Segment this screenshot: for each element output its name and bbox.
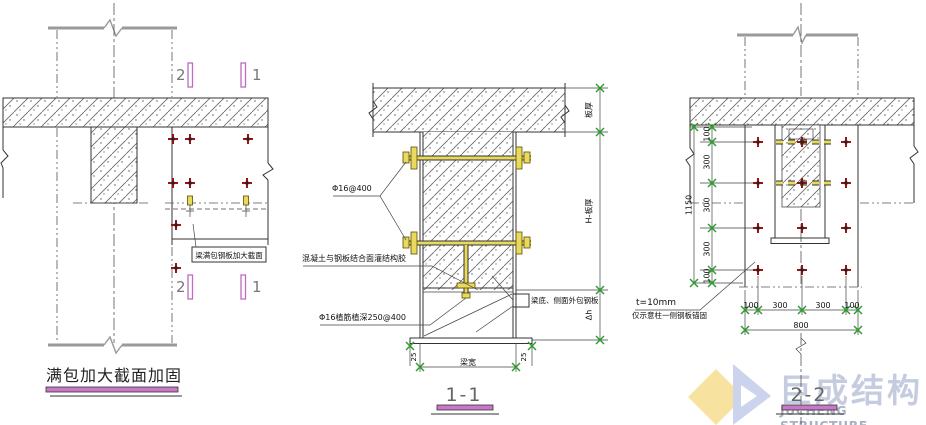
- dim-left-0: 100: [703, 126, 712, 141]
- label-bolts: Φ16@400: [332, 185, 372, 194]
- bottom-steel-plate: [410, 338, 532, 344]
- column-section: [91, 127, 137, 203]
- leader-bolts: [333, 162, 406, 240]
- dim-bottom-2: 300: [810, 301, 836, 310]
- dim-beam-width-label: 梁宽: [453, 357, 483, 368]
- section-marker-1-top: 1: [252, 66, 262, 84]
- label-wrap-plate: 梁底、侧面外包钢板: [531, 297, 599, 305]
- yellow-anchor-pins: [186, 196, 250, 217]
- label-anchorage-note: 仅示意柱一侧钢板锚固: [632, 312, 707, 320]
- dim-left-3: 300: [703, 241, 712, 256]
- section-marker-1-bottom: 1: [252, 278, 262, 296]
- left-view-linework: [1, 3, 273, 353]
- section-cut-bar-1-top: [241, 63, 246, 87]
- slab-section-1-1: [373, 88, 565, 132]
- dim-slab-thickness: 板厚: [584, 102, 595, 118]
- dim-bottom-0: 100: [738, 301, 764, 310]
- dim-beam-height: H-板厚: [584, 199, 595, 224]
- section-cut-bar-2-top: [188, 63, 193, 87]
- main-title: 满包加大截面加固: [46, 362, 182, 386]
- dim-left-total: 1150: [685, 195, 694, 215]
- wrap-note-label: 梁满包钢板加大截面: [194, 250, 264, 261]
- label-plate-thickness: t=10mm: [636, 299, 676, 309]
- dim-bottom-total: 800: [788, 321, 814, 330]
- section-cut-bar-1-bottom: [241, 275, 246, 299]
- dim-25-left: 25: [410, 353, 418, 362]
- main-title-underline: [46, 387, 182, 396]
- dim-25-right: 25: [520, 353, 528, 362]
- title-1-1: 1-1: [434, 384, 494, 406]
- section-marker-2-top: 2: [176, 66, 186, 84]
- section-marker-2-bottom: 2: [176, 278, 186, 296]
- dim-bottom-1: 300: [767, 301, 793, 310]
- slab-section: [3, 98, 268, 127]
- title-2-2: 2-2: [779, 384, 839, 406]
- dim-left-1: 300: [703, 154, 712, 169]
- dim-left-2: 300: [703, 197, 712, 212]
- slab-section-2-2: [690, 98, 914, 125]
- label-adhesive: 混凝土与钢板结合面灌结构胶: [302, 255, 406, 264]
- beam-bottom-flange: [771, 238, 829, 244]
- label-anchor-rebar: Φ16植筋植深250@400: [319, 314, 406, 323]
- dim-chain-left-2-2: [690, 123, 753, 287]
- dim-bottom-3: 100: [839, 301, 865, 310]
- dim-left-4: 100: [703, 268, 712, 283]
- section-2-2-linework: [635, 3, 918, 424]
- section-cut-bar-2-bottom: [188, 275, 193, 299]
- dim-added-height: Δh: [585, 310, 594, 321]
- drawing-canvas: 巨成结构 JUCHENG STRUCTURE: [0, 0, 926, 425]
